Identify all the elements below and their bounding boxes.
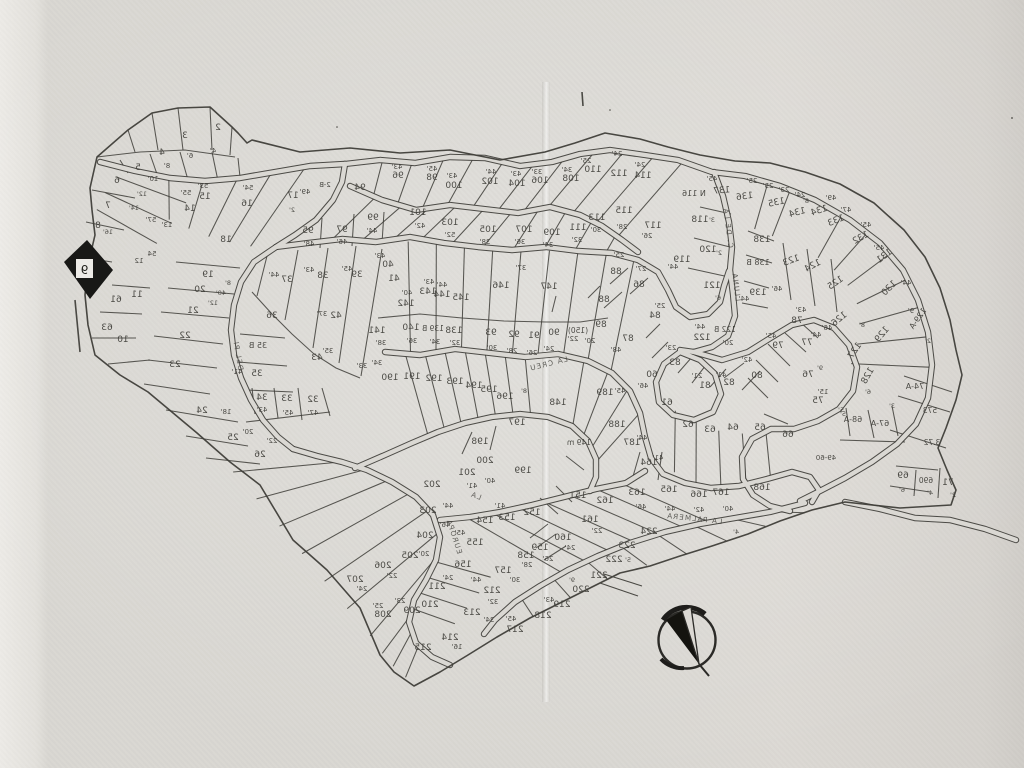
lot-label: 35 — [251, 369, 262, 379]
lot-label: 34' — [430, 338, 441, 346]
lot-label: 30' — [487, 344, 498, 352]
lot-label: 44' — [269, 271, 280, 279]
lot-label: 8' — [803, 197, 809, 205]
lot-label: 10' — [148, 175, 159, 183]
lot-label: 139 B — [422, 324, 444, 333]
lot-label: 166 — [690, 490, 707, 500]
lot-label: 122 B — [714, 325, 736, 334]
lot-label: 115 — [615, 206, 632, 216]
lot-label: 8 — [95, 221, 101, 231]
lot-label: 88 — [598, 295, 610, 305]
lot-label: 157 — [494, 566, 511, 576]
lot-label: 44' — [668, 263, 679, 271]
compass-icon — [659, 607, 716, 676]
lot-label: 30' — [591, 226, 602, 234]
lot-label: 40 — [382, 260, 394, 270]
lot-label: 34' — [543, 241, 554, 249]
lot-label: 140 — [402, 323, 419, 333]
lot-label: 35 B — [249, 341, 267, 350]
lot-label: 92 — [508, 330, 519, 340]
lot-label: 54 — [147, 250, 156, 258]
lot-label: 38 — [317, 271, 329, 281]
lot-label: 38' — [480, 238, 491, 246]
lot-label: 146 — [492, 281, 509, 291]
lot-label: 2 — [215, 123, 221, 133]
lot-label: 118 — [691, 215, 708, 225]
lot-label: 134 — [788, 206, 807, 220]
lot-label: 2' — [950, 491, 956, 499]
lot-label: 57' — [146, 216, 157, 224]
lot-label: 28' — [617, 223, 628, 231]
lot-label: 34' — [484, 616, 495, 624]
lot-label: 23' — [779, 186, 790, 194]
lot-label: 43' — [392, 163, 403, 171]
lot-label: 209 — [403, 606, 420, 616]
lot-label: 111 — [569, 223, 586, 233]
lot-label: 218 — [534, 611, 551, 621]
lot-label: 9' — [817, 364, 823, 372]
lot-label: 36 — [266, 311, 278, 321]
lot-label: 168 — [753, 483, 770, 493]
lot-label: 32' — [488, 598, 499, 606]
lot-label: 12' — [137, 190, 147, 198]
lot-label: 24' — [544, 345, 555, 353]
lot-label: 132 — [851, 230, 871, 247]
lot-label: 13' — [162, 221, 173, 229]
lot-label: 41 — [388, 274, 399, 284]
lot-label: 124 — [803, 258, 823, 275]
lot-label: 43' — [257, 406, 268, 414]
lot-label: 194 — [465, 381, 482, 391]
lot-label: 69 — [897, 471, 909, 481]
lot-label: 215 — [414, 643, 431, 653]
lot-label: 64 — [727, 423, 739, 433]
lot-label: 36' — [407, 337, 418, 345]
lot-label: 24' — [443, 574, 454, 582]
lot-label: 22' — [267, 437, 278, 445]
lot-label: 5' — [625, 556, 631, 564]
lot-label: 81 — [699, 381, 710, 391]
lot-label: 44' — [367, 227, 378, 235]
lot-label: 43' — [424, 278, 435, 286]
lot-label: 7 — [105, 201, 111, 211]
lot-label: 35' — [323, 347, 334, 355]
lot-label: 214 — [441, 633, 458, 643]
lot-label: 61 — [661, 398, 672, 408]
lot-label: 10 — [117, 335, 129, 345]
lot-label: 36' — [515, 238, 526, 246]
lot-label: 212 — [483, 586, 500, 596]
lot-label: 45' — [766, 332, 777, 340]
lot-label: 112 — [610, 169, 627, 179]
lot-label: 155 — [466, 538, 483, 548]
lot-label: 27' — [636, 265, 647, 273]
lot-label: 219 — [553, 600, 570, 610]
lot-label: 43' — [544, 596, 555, 604]
lot-label: 138 — [753, 235, 770, 245]
lot-label: 45' — [615, 387, 626, 395]
lot-label: 20' — [419, 550, 430, 558]
lot-label: 11 — [131, 290, 142, 300]
lot-label: 45' — [861, 221, 872, 229]
lot-label: 99 — [367, 213, 379, 223]
lot-label: 25' — [747, 177, 758, 185]
lot-label: 54' — [243, 184, 254, 192]
lot-label: 26' — [642, 232, 653, 240]
lot-label: 106 — [531, 176, 548, 186]
lot-label: 138 — [445, 326, 462, 336]
lot-label: 60 — [646, 370, 658, 380]
lot-label: 48' — [304, 240, 315, 248]
lot-label: 55' — [181, 189, 192, 197]
lot-label: 86 — [633, 280, 645, 290]
lot-label: 43' — [511, 170, 522, 178]
lot-label: 161 — [581, 515, 598, 525]
lot-label: 156 — [454, 560, 471, 570]
lot-label: 690 — [919, 476, 934, 485]
lot-label: 152 — [523, 508, 540, 518]
lot-label: 160 — [554, 533, 571, 543]
lot-label: 5' — [840, 410, 846, 418]
lot-label: 44' — [443, 502, 454, 510]
lot-label: 48' — [611, 346, 622, 354]
lot-label: 46' — [636, 503, 647, 511]
lot-label: 63 — [704, 425, 715, 435]
lot-label: 76 — [802, 370, 814, 380]
lot-label: 33 — [281, 394, 292, 404]
lot-label: 104 — [508, 179, 525, 189]
lot-label: 89 — [595, 320, 607, 330]
lot-label: 24' — [357, 585, 368, 593]
lot-label: 80 — [751, 371, 763, 381]
lot-label: 204 — [416, 531, 433, 541]
lot-label: 20 — [194, 285, 206, 295]
lot-label: 190 — [381, 373, 398, 383]
lot-label: 95 — [302, 226, 313, 236]
lot-label: 2' — [925, 337, 931, 345]
lot-label: 42' — [694, 506, 705, 514]
lot-label: 202 — [423, 480, 440, 490]
lot-label: 199 — [514, 466, 531, 476]
lot-label: 120 — [699, 245, 716, 255]
lot-label: 22' — [568, 335, 579, 343]
lot-label: 16' — [452, 643, 463, 651]
lot-label: 153 — [498, 513, 515, 523]
lot-label: 6' — [715, 294, 721, 302]
lot-label: 25 — [227, 433, 238, 443]
lot-label: 52' — [445, 231, 456, 239]
lot-label: 9' — [569, 576, 575, 584]
lot-label: 18 — [220, 235, 232, 245]
lot-label: 151 — [569, 491, 586, 501]
lot-label: 24 — [196, 406, 208, 416]
lot-label: 42 — [330, 311, 341, 321]
lot-label: 205 — [401, 551, 418, 561]
lot-label: 44' — [437, 281, 448, 289]
lot-label: 3' — [889, 402, 895, 410]
lot-label: 113 — [588, 213, 605, 223]
lot-label: 25' — [373, 602, 384, 610]
lot-label: 40' — [216, 289, 226, 297]
lot-label: 44' — [486, 168, 497, 176]
lot-label: 25' — [655, 302, 666, 310]
lot-label: 46' — [772, 285, 783, 293]
lot-label: 139 — [749, 288, 766, 298]
lot-label: 145 — [452, 293, 469, 303]
scanned-plat-map: 9 234'6'48'10'56712'14'816'1161631053'15… — [0, 0, 1024, 768]
lot-label: 165 — [660, 485, 677, 495]
lot-label: 66 — [782, 430, 794, 440]
lot-label: 62 — [682, 420, 693, 430]
lot-label: 43 — [311, 353, 322, 363]
lot-label: 77 — [801, 338, 812, 348]
lot-label: 130 — [880, 279, 899, 298]
lot-label: 162 — [596, 496, 613, 506]
lot-label: 49' — [826, 194, 837, 202]
lot-label: 110 — [584, 165, 601, 175]
lot-label: 15' — [818, 388, 829, 396]
lot-label: 16' — [103, 228, 113, 236]
lot-label: 201 — [458, 468, 475, 478]
lot-label: 37' — [516, 264, 527, 272]
lot-label: 91 — [528, 331, 539, 341]
lot-label: 34' — [372, 359, 383, 367]
lot-label: 26' — [543, 555, 554, 563]
lot-label: 198 — [471, 437, 488, 447]
lot-label: 193 — [446, 377, 463, 387]
lot-label: 71 — [942, 478, 953, 488]
lot-label: 16 — [241, 199, 253, 209]
lot-label: 3.72 — [923, 438, 940, 447]
lot-label: 148 — [549, 398, 566, 408]
lot-label: 42' — [415, 222, 426, 230]
lot-label: 6 — [114, 176, 120, 186]
lot-label: 63 — [101, 323, 112, 333]
lot-label: 22' — [592, 527, 603, 535]
lot-label: 122 — [693, 333, 710, 343]
lot-label: 24' — [612, 150, 623, 158]
lot-label: 102 — [481, 177, 498, 187]
lot-label: 34' — [562, 166, 573, 174]
lot-label: 32' — [572, 236, 583, 244]
road-label: C. DE LA — [722, 207, 736, 248]
lot-label: 5 — [135, 163, 141, 173]
lot-label: 2' — [716, 249, 722, 257]
lot-label: 6' — [899, 486, 905, 494]
lot-label: 45' — [707, 175, 718, 183]
lot-label: 108 — [562, 174, 579, 184]
lot-label: 67-A — [870, 419, 889, 428]
lot-label: 43' — [304, 266, 315, 274]
lot-label: 109 — [543, 228, 560, 238]
lot-label: 23 — [169, 360, 180, 370]
lot-label: 78 — [791, 316, 803, 326]
lot-label: 125 — [826, 274, 846, 292]
lot-label: 117 — [644, 221, 661, 231]
lot-label: 96 — [392, 171, 404, 181]
lot-label: 141 — [368, 326, 385, 336]
lot-label: 3 — [182, 131, 188, 141]
lot-label: 26' — [527, 349, 538, 357]
lot-label: 222 — [605, 555, 622, 565]
lot-label: 45' — [427, 165, 438, 173]
lot-label: 34 — [256, 393, 268, 403]
lot-label: 19 — [202, 270, 214, 280]
lot-label: 83 — [669, 358, 680, 368]
lot-label: 17 — [287, 191, 298, 201]
lot-label: 93 — [485, 328, 496, 338]
lot-label: 573 — [923, 406, 938, 415]
lot-label: 44' — [901, 279, 912, 287]
lot-label: 4' — [733, 528, 739, 536]
lot-label: 195 — [480, 385, 497, 395]
lot-label: (150) — [568, 326, 588, 335]
lot-label: 79 — [772, 341, 784, 351]
lot-number-labels: 234'6'48'10'56712'14'816'1161631053'1555… — [95, 123, 956, 653]
lot-label: 2' — [289, 206, 295, 214]
lot-label: 41' — [716, 371, 727, 379]
lot-label: 144 — [433, 290, 450, 300]
lot-label: 6' — [187, 152, 193, 160]
lot-label: 41' — [467, 482, 478, 490]
lot-label: 23' — [666, 344, 677, 352]
lot-label: 8' — [859, 321, 865, 329]
filled-parcel-9: 9 — [64, 240, 113, 299]
lot-label: 210 — [421, 600, 438, 610]
lot-label: 9' — [908, 307, 914, 315]
lot-label: 207 — [346, 575, 363, 585]
lot-label: 142 — [397, 299, 414, 309]
lot-label: 28' — [522, 561, 533, 569]
lot-label: 43' — [796, 306, 807, 314]
lot-label: 103 — [441, 218, 458, 228]
lot-label: 158 — [517, 551, 534, 561]
lot-label: 44' — [471, 576, 482, 584]
lot-label: 40' — [485, 477, 496, 485]
lot-label: 121 — [703, 281, 720, 291]
lot-label: 191 — [403, 372, 420, 382]
lot-label: 44' — [811, 331, 822, 339]
lot-label: 41' — [495, 502, 506, 510]
lot-label: 211 — [428, 582, 445, 592]
lot-label: 46' — [337, 238, 348, 246]
lot-label: 43' — [375, 252, 386, 260]
lot-label: 26 — [254, 450, 266, 460]
lot-label: 105 — [479, 225, 496, 235]
lot-label: 46' — [638, 382, 649, 390]
lot-label: 217 — [506, 625, 523, 635]
lot-label: 100 — [445, 181, 462, 191]
lot-label: 94 — [354, 183, 366, 193]
lot-label: 6' — [865, 388, 871, 396]
lot-label: 41' — [653, 454, 664, 462]
lot-label: 167 — [712, 488, 729, 498]
lot-label: 38' — [376, 339, 387, 347]
lot-label: 20' — [585, 337, 596, 345]
lot-label: 138 B — [746, 258, 769, 267]
lot-label: 65 — [754, 423, 765, 433]
lot-label: 18' — [221, 408, 232, 416]
lot-label: 12' — [208, 299, 218, 307]
lot-label: 40' — [402, 289, 413, 297]
lot-label: 134 — [809, 204, 829, 219]
lot-label: 107 — [515, 225, 532, 235]
lot-label: 45' — [342, 265, 353, 273]
lot-label: 114 — [634, 171, 651, 181]
lot-label: N 116 — [682, 189, 706, 198]
lot-label: 224 — [640, 527, 657, 537]
lot-label: 45' — [283, 409, 294, 417]
lot-label: 206 — [374, 561, 391, 571]
lot-label: 8' — [521, 387, 527, 395]
lot-label: 12 — [135, 257, 144, 265]
lot-label: 200 — [476, 456, 493, 466]
lot-label: 30' — [510, 576, 521, 584]
lot-label: 128 — [860, 366, 877, 386]
lot-label: 25' — [763, 182, 774, 190]
lot-label: 61 — [110, 295, 121, 305]
lot-label: 14 — [184, 204, 196, 214]
lot-label: 4 — [159, 148, 165, 158]
lot-label: 23' — [395, 597, 406, 605]
lot-label: 220 — [572, 585, 589, 595]
lot-label: 22' — [387, 572, 398, 580]
lot-label: 4' — [927, 489, 933, 497]
lot-label: 196 — [496, 392, 513, 402]
lot-label: 40' — [723, 505, 734, 513]
lot-label: 149 m — [567, 438, 591, 447]
lot-label: 37' — [317, 310, 328, 318]
lot-label: 20' — [243, 428, 254, 436]
lot-label: 45' — [506, 615, 517, 623]
lot-label: 88 — [610, 267, 622, 277]
lot-label: 3' — [709, 216, 715, 224]
lot-label: 28' — [507, 347, 518, 355]
lot-label: 98 — [426, 173, 438, 183]
lot-label: 90 — [548, 328, 560, 338]
lot-label: 24' — [565, 544, 576, 552]
lot-label: 4' — [210, 147, 216, 155]
lot-label: 44' — [637, 434, 648, 442]
lot-label: 44' — [695, 323, 706, 331]
lot-label: 14' — [129, 204, 139, 212]
lot-label: 8' — [225, 279, 231, 287]
lot-label: 21' — [692, 372, 703, 380]
lot-label: 208 — [374, 610, 391, 620]
lot-label: 189 — [596, 388, 613, 398]
lot-label: 87 — [622, 334, 633, 344]
filled-parcel-label: 9 — [81, 263, 89, 277]
lot-label: 53' — [198, 182, 209, 190]
lot-label: 137 — [713, 185, 731, 196]
lot-label: 223 — [618, 541, 635, 551]
lot-label: 82 — [723, 378, 734, 388]
lot-label: 8' — [164, 162, 170, 170]
lot-label: 221 — [590, 571, 607, 581]
lot-label: 197 — [508, 418, 525, 428]
lot-label: 25' — [614, 251, 625, 259]
lot-label: 163 — [628, 488, 645, 498]
lot-label: 136 — [735, 191, 754, 203]
lot-label: 101 — [409, 208, 426, 218]
lot-label: 97 — [336, 225, 347, 235]
lot-label: 147 — [540, 282, 557, 292]
plat-map-svg: 9 234'6'48'10'56712'14'816'1161631053'15… — [0, 0, 1024, 768]
lot-label: 25' — [581, 157, 592, 165]
lot-label: 75 — [812, 396, 823, 406]
lot-label: 133 — [826, 213, 846, 229]
lot-label: 24' — [635, 161, 646, 169]
